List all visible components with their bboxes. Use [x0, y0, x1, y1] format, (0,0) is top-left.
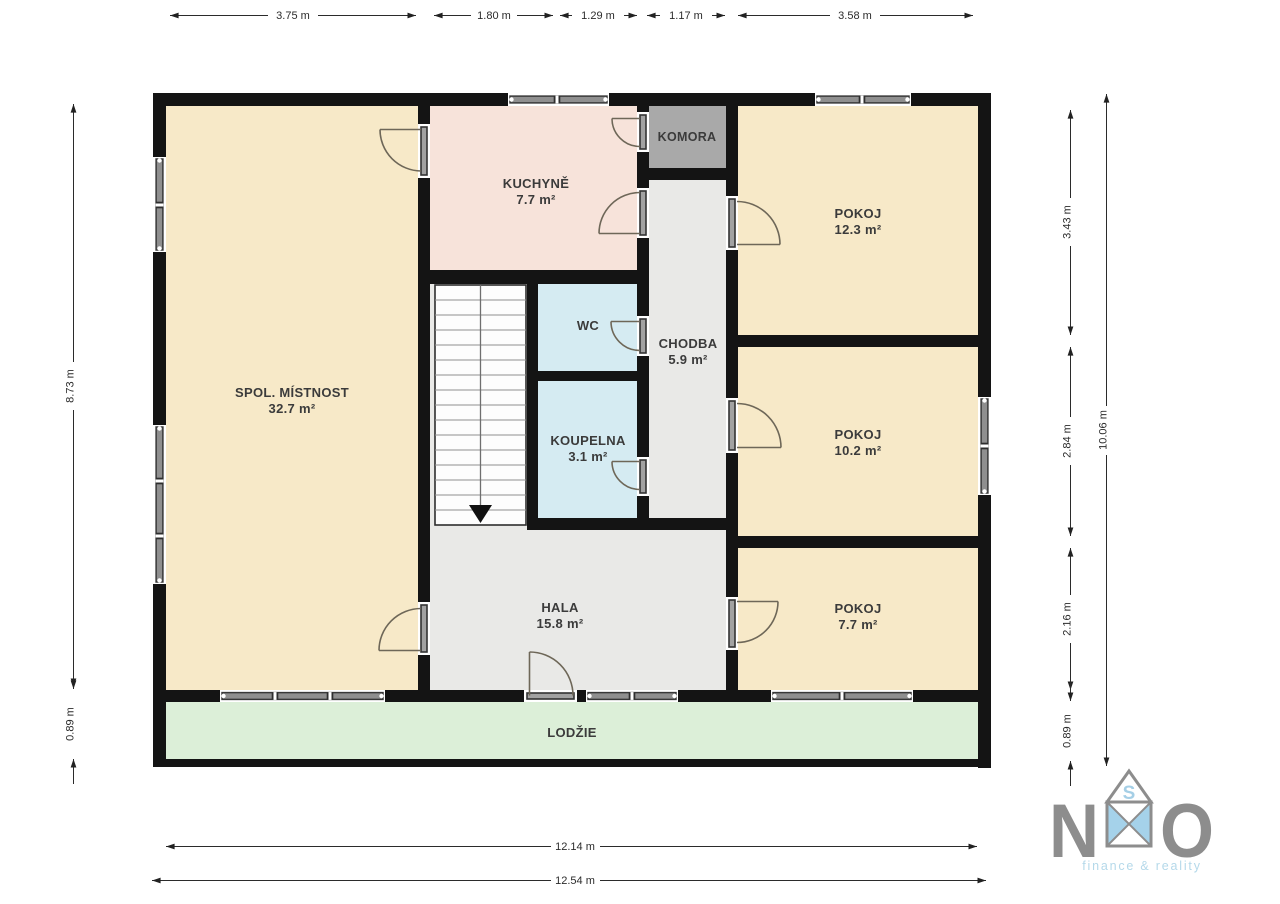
- svg-text:3.43 m: 3.43 m: [1062, 205, 1074, 239]
- svg-text:0.89 m: 0.89 m: [1062, 714, 1074, 748]
- svg-text:10.2 m²: 10.2 m²: [835, 443, 882, 458]
- svg-text:HALA: HALA: [541, 600, 579, 615]
- svg-text:WC: WC: [577, 318, 600, 333]
- svg-text:KUCHYNĚ: KUCHYNĚ: [503, 176, 569, 191]
- svg-text:1.80 m: 1.80 m: [477, 10, 511, 22]
- svg-text:2.84 m: 2.84 m: [1062, 424, 1074, 458]
- svg-text:KOUPELNA: KOUPELNA: [550, 433, 626, 448]
- svg-text:1.29 m: 1.29 m: [581, 10, 615, 22]
- svg-text:CHODBA: CHODBA: [659, 336, 718, 351]
- svg-text:1.17 m: 1.17 m: [669, 10, 703, 22]
- svg-text:LODŽIE: LODŽIE: [547, 725, 596, 740]
- svg-text:POKOJ: POKOJ: [834, 601, 881, 616]
- svg-text:3.58 m: 3.58 m: [838, 10, 872, 22]
- svg-text:0.89 m: 0.89 m: [65, 707, 77, 741]
- svg-text:POKOJ: POKOJ: [834, 427, 881, 442]
- svg-text:32.7 m²: 32.7 m²: [269, 401, 316, 416]
- svg-text:8.73 m: 8.73 m: [65, 369, 77, 403]
- svg-text:12.14 m: 12.14 m: [555, 841, 595, 853]
- svg-text:15.8 m²: 15.8 m²: [537, 616, 584, 631]
- svg-text:12.54 m: 12.54 m: [555, 875, 595, 887]
- svg-text:2.16 m: 2.16 m: [1062, 602, 1074, 636]
- svg-text:10.06 m: 10.06 m: [1098, 410, 1110, 450]
- svg-text:3.1 m²: 3.1 m²: [568, 449, 608, 464]
- svg-text:S: S: [1123, 783, 1136, 804]
- svg-text:SPOL. MÍSTNOST: SPOL. MÍSTNOST: [235, 385, 349, 400]
- svg-text:12.3 m²: 12.3 m²: [835, 222, 882, 237]
- svg-text:3.75 m: 3.75 m: [276, 10, 310, 22]
- svg-text:5.9 m²: 5.9 m²: [668, 352, 708, 367]
- svg-text:finance & reality: finance & reality: [1082, 859, 1202, 873]
- svg-text:7.7 m²: 7.7 m²: [838, 617, 878, 632]
- svg-text:KOMORA: KOMORA: [658, 130, 717, 144]
- svg-text:7.7 m²: 7.7 m²: [516, 192, 556, 207]
- svg-text:POKOJ: POKOJ: [834, 206, 881, 221]
